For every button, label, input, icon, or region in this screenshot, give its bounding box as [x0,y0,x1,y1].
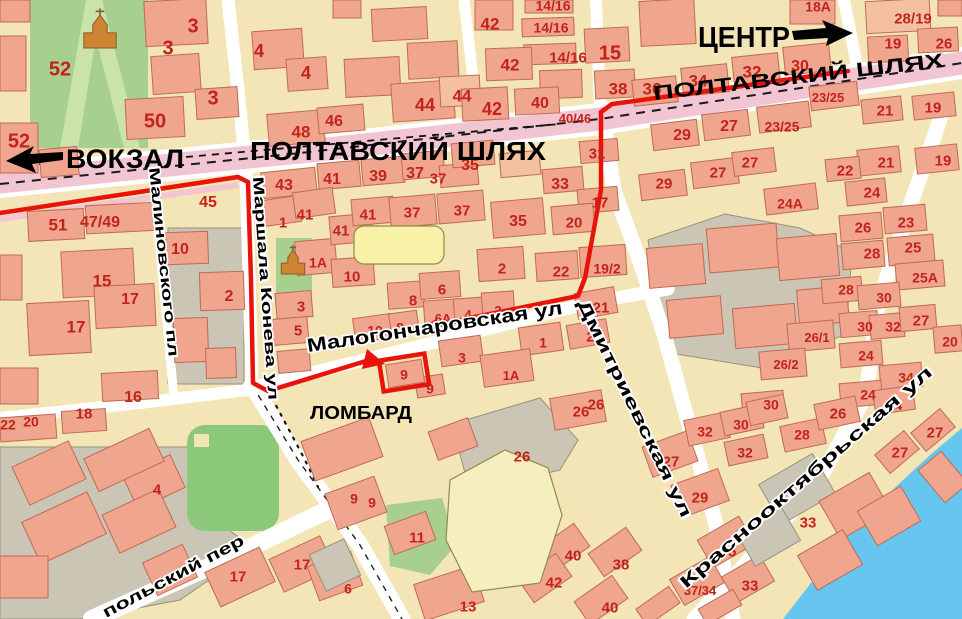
label-lombard: ЛОМБАРД [310,403,412,423]
house-number: 37 [454,203,471,220]
building [646,244,705,289]
house-number: 26/1 [804,330,829,345]
house-number: 1 [539,334,547,350]
house-number: 44 [415,95,435,115]
house-number: 4 [301,63,311,83]
house-number: 1А [309,254,327,270]
house-number: 33 [551,176,569,193]
house-number: 1 [279,215,287,232]
house-number: 17 [592,195,609,212]
map-viewport[interactable]: 335235044485243454214/1614/1614/16154238… [0,0,962,619]
house-number: 41 [360,207,377,224]
house-number: 41 [323,171,341,188]
building [151,53,202,94]
label-vokzal: ВОКЗАЛ [66,144,184,174]
house-number: 24 [864,185,881,202]
house-number: 32 [697,423,713,439]
building [666,296,723,339]
house-number: 28 [794,426,810,442]
building [277,349,311,374]
house-number: 46 [325,113,343,130]
house-number: 30 [763,396,779,412]
house-number: 17 [67,317,86,336]
house-number: 9 [368,494,376,510]
house-number: 27 [927,425,944,442]
house-number: 20 [23,413,39,429]
building [0,36,26,91]
building [333,0,361,18]
building [0,368,38,404]
house-number: 16 [124,389,142,406]
house-number: 32 [737,444,753,460]
house-number: 5 [294,323,302,340]
house-number: 50 [144,111,166,133]
house-number: 15 [93,271,112,290]
house-number: 9 [426,380,434,396]
house-number: 23 [898,215,915,232]
house-number: 21 [878,155,895,172]
house-number: 30 [857,318,873,334]
house-number: 33 [800,515,817,532]
house-number: 41 [297,207,314,224]
house-number: 44 [453,86,472,105]
house-number: 27 [913,313,930,330]
house-number: 42 [482,99,502,119]
house-number: 9 [400,366,408,382]
house-number: 4 [254,41,264,61]
building [706,223,780,273]
house-number: 27 [710,165,727,182]
house-number: 28/19 [894,11,932,28]
house-number: 37 [430,171,447,188]
house-number: 3 [297,299,305,316]
house-number: 24 [858,347,874,363]
label-centr: ЦЕНТР [698,22,790,54]
building [639,0,696,46]
building [275,290,313,319]
house-number: 29 [692,490,709,507]
house-number: 14/16 [549,50,587,67]
house-number: 26 [573,404,590,421]
house-number: 52 [8,131,30,153]
house-number: 31 [589,146,606,163]
house-number: 10 [344,269,361,286]
house-number: 38 [609,79,628,98]
house-number: 19 [925,100,942,117]
house-number: 38 [613,557,630,574]
building [205,347,236,378]
house-number: 6 [438,282,446,299]
house-number: 1А [503,368,520,383]
label-poltavsky-shlyakh: ПОЛТАВСКИЙ ШЛЯХ [250,136,547,166]
building [0,556,48,598]
house-number: 27 [892,445,909,462]
house-number: 15 [599,43,621,65]
house-number: 26 [830,406,847,423]
house-number: 10 [171,241,189,258]
house-number: 23/25 [812,90,845,105]
house-number: 40/46 [559,111,592,126]
house-number: 4 [153,482,162,499]
house-number: 2 [498,261,506,278]
house-number: 52 [49,59,71,81]
house-number: 13 [460,599,477,616]
house-number: 28 [838,281,854,297]
house-number: 8 [409,293,417,310]
house-number: 17 [294,557,311,574]
house-number: 32 [885,318,901,334]
house-number: 42 [501,55,520,74]
building [0,255,22,300]
field-hut [194,434,209,447]
house-number: 14/16 [533,19,568,35]
house-number: 24 [860,386,876,402]
house-number: 17 [121,291,139,308]
house-number: 28 [864,246,881,263]
house-number: 9 [350,490,358,506]
house-number: 2 [225,288,234,305]
house-number: 22 [837,163,854,180]
house-number: 42 [546,575,563,592]
house-number: 29 [656,176,673,193]
house-number: 29 [673,127,691,144]
house-number: 33 [742,578,759,595]
house-number: 35 [509,213,527,230]
house-number: 18А [805,0,831,14]
house-number: 11 [409,530,425,547]
house-number: 19 [935,153,952,170]
building [0,0,30,22]
house-number: 20 [942,333,958,349]
house-number: 22 [0,416,16,432]
building [407,41,459,80]
house-number: 25А [912,269,938,285]
house-number: 40 [602,600,619,617]
house-number: 17 [230,569,247,586]
house-number: 43 [275,177,293,194]
building [387,281,425,309]
house-number: 40 [565,548,582,565]
house-number: 21 [877,103,894,120]
house-number: 18 [76,406,93,423]
house-number: 42 [481,14,500,33]
house-number: 26 [588,397,605,414]
house-number: 3 [187,16,198,38]
house-number: 20 [566,215,583,232]
house-number: 30 [876,289,892,305]
house-number: 26 [855,220,872,237]
house-number: 27 [742,155,759,172]
map-canvas[interactable]: 335235044485243454214/1614/1614/16154238… [0,0,962,619]
building [199,271,244,311]
house-number: 3 [207,88,218,110]
house-number: 6 [344,580,352,596]
house-number: 51 [49,215,68,234]
yellow-building [354,226,444,264]
house-number: 22 [553,264,570,281]
house-number: 37 [406,165,424,182]
house-number: 3 [162,38,173,60]
house-number: 23/25 [764,118,799,134]
house-number: 26/2 [773,357,798,372]
building [938,0,962,16]
house-number: 37 [404,205,421,222]
house-number: 41 [333,223,350,240]
house-number: 47/49 [80,214,120,231]
house-number: 24А [777,195,803,211]
house-number: 27 [720,118,738,135]
house-number: 45 [199,194,217,211]
house-number: 3 [458,349,466,365]
building [371,7,428,42]
house-number: 26 [514,449,531,466]
house-number: 30 [733,416,749,432]
house-number: 25 [905,240,922,257]
house-number: 19/2 [593,260,620,276]
house-number: 40 [531,95,549,112]
house-number: 39 [369,168,387,185]
house-number: 14/16 [535,0,570,13]
building [776,233,839,280]
house-number: 19 [885,36,902,53]
